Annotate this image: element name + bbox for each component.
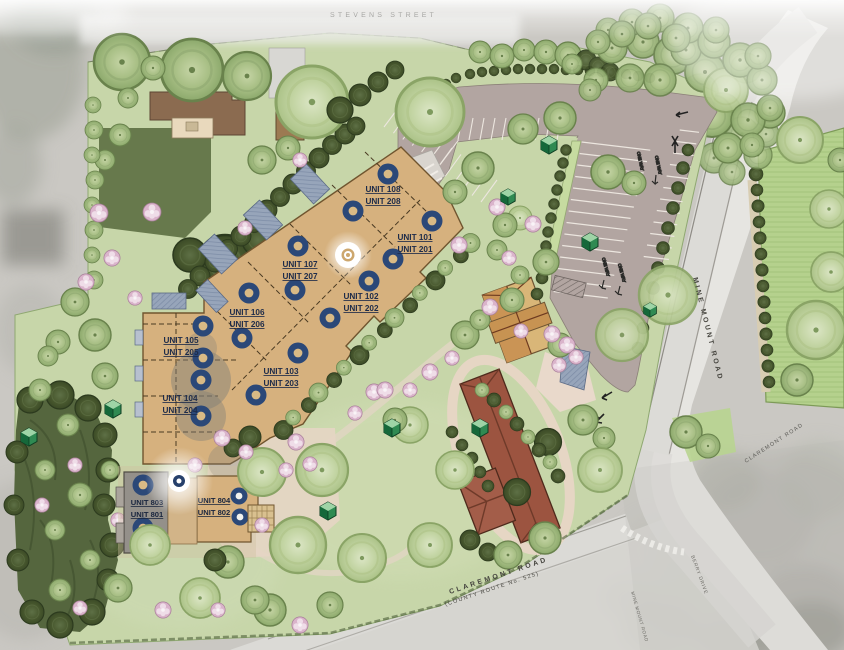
svg-text:UNIT 208: UNIT 208 [365, 197, 400, 206]
svg-text:UNIT 802: UNIT 802 [198, 508, 231, 517]
svg-text:UNIT 207: UNIT 207 [282, 272, 317, 281]
svg-text:UNIT 202: UNIT 202 [343, 304, 378, 313]
svg-text:UNIT 101: UNIT 101 [397, 233, 432, 242]
svg-text:UNIT 104: UNIT 104 [162, 394, 197, 403]
svg-text:UNIT 102: UNIT 102 [343, 292, 378, 301]
svg-text:UNIT 204: UNIT 204 [162, 406, 197, 415]
svg-text:UNIT 206: UNIT 206 [229, 320, 264, 329]
svg-text:UNIT 201: UNIT 201 [397, 245, 432, 254]
svg-text:UNIT 103: UNIT 103 [263, 367, 298, 376]
svg-text:UNIT 107: UNIT 107 [282, 260, 317, 269]
svg-text:UNIT 108: UNIT 108 [365, 185, 400, 194]
svg-text:UNIT 105: UNIT 105 [163, 336, 198, 345]
svg-text:UNIT 801: UNIT 801 [131, 510, 164, 519]
svg-text:UNIT 205: UNIT 205 [163, 348, 198, 357]
svg-text:UNIT 203: UNIT 203 [263, 379, 298, 388]
svg-text:UNIT 106: UNIT 106 [229, 308, 264, 317]
